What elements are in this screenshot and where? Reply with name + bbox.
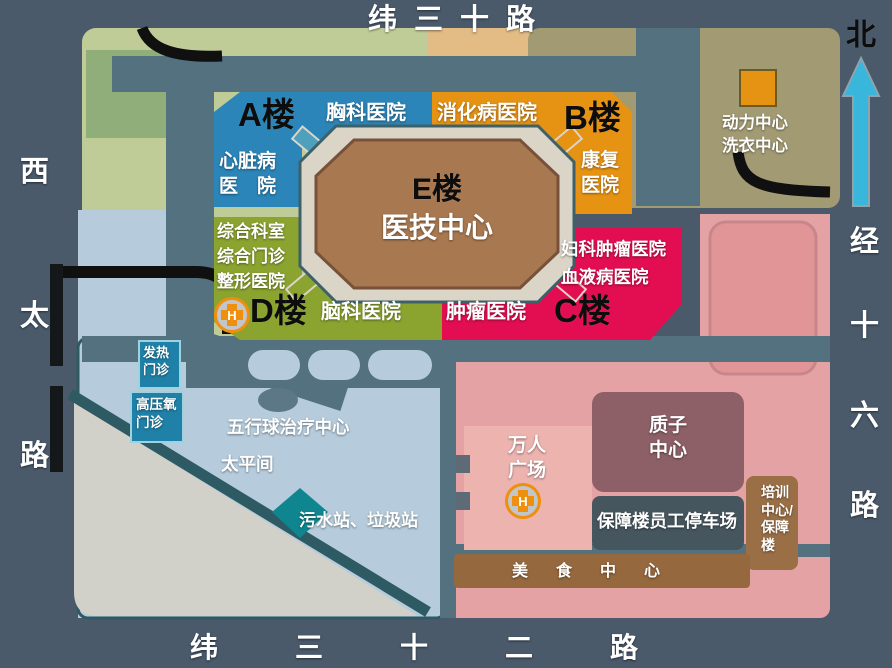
helipad-h-label: H: [227, 309, 236, 322]
power-laundry-label: 动力中心 洗衣中心: [722, 112, 788, 158]
helipad-icon: H: [214, 297, 250, 333]
comprehensive-depts-label: 综合科室 综合门诊 整形医院: [217, 219, 285, 294]
parking-label: 保障楼员工停车场: [597, 510, 737, 533]
hospital-campus-map: 纬三十路 纬 三 十 二 路 西 太 路 经 十 六 路 北 A楼 B楼 C楼 …: [0, 0, 892, 668]
road-vertical-east: [636, 28, 700, 206]
medtech-center-label: 医技中心: [337, 210, 537, 246]
black-road-edge: [50, 386, 63, 472]
road-label-west: 西: [20, 148, 49, 190]
gyn-blood-hospital-label: 妇科肿瘤医院 血液病医院: [561, 235, 666, 291]
road-label-west: 路: [20, 432, 49, 474]
wuxing-therapy-label: 五行球治疗中心: [227, 416, 350, 439]
north-arrow-icon: [843, 58, 879, 206]
road-label-east: 六: [850, 392, 879, 434]
road-label-east: 经: [850, 218, 879, 260]
proton-center-label: 质子 中心: [603, 414, 733, 463]
plaza-label: 万人 广场: [477, 434, 577, 483]
building-d-label: D楼: [250, 290, 307, 333]
road-vertical-west: [166, 56, 214, 342]
north-label: 北: [846, 16, 876, 55]
rehab-hospital-label: 康复 医院: [572, 149, 628, 198]
road-char: 纬: [190, 626, 218, 666]
road-label-top: 纬三十路: [368, 2, 552, 40]
building-a-label: A楼: [238, 94, 295, 137]
helipad-h-label: H: [518, 495, 527, 508]
black-road-edge: [50, 264, 63, 366]
tumor-hospital-label: 肿瘤医院: [446, 299, 526, 325]
road-char: 三: [295, 626, 323, 666]
plaza-notch: [456, 492, 470, 510]
food-court-label: 美食中心: [512, 562, 688, 583]
fever-clinic-label: 发热 门诊: [143, 344, 169, 378]
road-char: 十: [400, 626, 428, 666]
chest-hospital-label: 胸科医院: [326, 100, 406, 126]
road-char: 路: [610, 626, 638, 666]
road-island: [248, 350, 300, 380]
building-b-label: B楼: [564, 97, 621, 140]
power-center-block: [740, 70, 776, 106]
road-label-east: 十: [850, 302, 879, 344]
helipad-icon: H: [505, 483, 541, 519]
morgue-label: 太平间: [221, 453, 274, 476]
training-building-label: 培训 中心/ 保障 楼: [761, 484, 793, 554]
road-label-bottom: 纬 三 十 二 路: [190, 626, 638, 666]
road-char: 二: [505, 626, 533, 666]
building-e-label: E楼: [337, 170, 537, 209]
road-label-east: 路: [850, 482, 879, 524]
plaza-notch: [456, 455, 470, 473]
road-label-west: 太: [20, 292, 49, 334]
hyperbaric-clinic-label: 高压氧 门诊: [136, 396, 177, 432]
digestive-hospital-label: 消化病医院: [437, 100, 537, 126]
road-island: [308, 350, 360, 380]
road-vertical-center: [440, 338, 456, 618]
sewage-garbage-label: 污水站、垃圾站: [299, 510, 418, 532]
road-roundabout: [258, 388, 298, 412]
road-island: [368, 350, 432, 380]
heart-hospital-label: 心脏病 医 院: [219, 150, 276, 199]
brain-hospital-label: 脑科医院: [321, 299, 401, 325]
building-c-label: C楼: [554, 290, 611, 333]
